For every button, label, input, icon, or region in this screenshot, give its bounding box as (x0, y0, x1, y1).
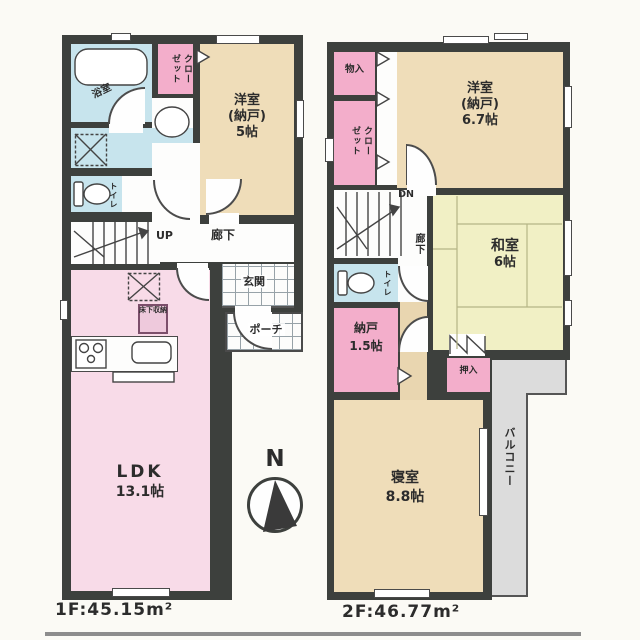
label-underfloor-storage: 床下収納 (139, 306, 167, 315)
floorplan-canvas: N 浴室 クローゼット 洋室 (納戸) 5帖 トイレ UP 廊下 玄関 ポーチ … (0, 0, 640, 640)
label-ldk-l2: 13.1帖 (92, 484, 188, 500)
window (216, 35, 260, 44)
window (494, 33, 528, 40)
label-toilet-2f: トイレ (380, 266, 394, 300)
label-closet-1f: クローゼット (159, 50, 193, 88)
window (374, 589, 430, 598)
label-hallway-2f: 廊下 (409, 222, 426, 266)
label-bedroom-l1: 寝室 (345, 470, 465, 486)
label-stairs-dn: DN (392, 190, 420, 201)
window (564, 86, 572, 128)
label-stairs-up: UP (156, 230, 190, 243)
label-western-1f-l3: 5帖 (202, 126, 292, 141)
label-western-1f-l2: (納戸) (202, 110, 292, 125)
label-western-2f-l1: 洋室 (420, 82, 540, 97)
corridor-toilet-1f (122, 176, 152, 212)
label-oshiire: 押入 (447, 366, 490, 376)
label-entrance: 玄関 (230, 276, 278, 289)
label-balcony: バルコニー (500, 398, 518, 516)
door-opening (209, 213, 239, 224)
label-storage-2f-l2: 1.5帖 (334, 340, 398, 354)
window (564, 220, 572, 276)
label-storage-in: 物入 (334, 65, 375, 76)
window (296, 100, 304, 138)
label-bedroom-l2: 8.8帖 (345, 489, 465, 505)
label-western-2f-l3: 6.7帖 (420, 114, 540, 129)
label-area-2f: 2F:46.77m² (342, 603, 460, 623)
label-western-1f-l1: 洋室 (202, 94, 292, 109)
compass-north-label: N (258, 446, 292, 472)
label-porch: ポーチ (238, 324, 294, 337)
room-japanese (433, 195, 563, 350)
label-toilet-1f: トイレ (106, 178, 120, 212)
footer-rule (45, 632, 581, 636)
window (60, 300, 68, 320)
label-closet-2f: クローゼット (337, 122, 373, 160)
label-hallway-1f: 廊下 (198, 229, 248, 243)
label-western-2f-l2: (納戸) (420, 98, 540, 113)
window (564, 300, 572, 326)
closet-door-strip (377, 52, 397, 185)
label-area-1f: 1F:45.15m² (55, 601, 173, 621)
balcony-door-window (479, 428, 488, 516)
compass-circle (247, 477, 303, 533)
stairs-1f (71, 222, 160, 264)
label-japanese-l2: 6帖 (455, 256, 555, 271)
window (112, 588, 170, 597)
kitchen-counter (71, 336, 178, 372)
label-storage-2f-l1: 納戸 (334, 322, 398, 336)
window (325, 138, 334, 162)
window (443, 36, 489, 44)
window (111, 33, 131, 41)
label-japanese-l1: 和室 (455, 238, 555, 254)
label-ldk-l1: LDK (92, 463, 188, 483)
